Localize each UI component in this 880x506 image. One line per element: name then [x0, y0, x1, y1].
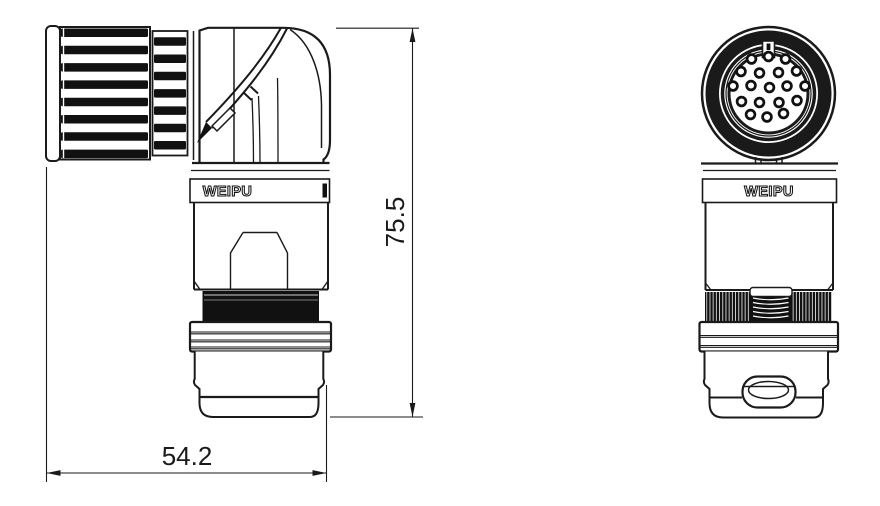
dim-height-arrow-bottom: [410, 403, 416, 417]
knurl-rib: [154, 37, 186, 46]
front-label-band: WEIPU: [701, 164, 838, 203]
front-coupling-rings: [702, 27, 835, 160]
connector-pin: [783, 82, 792, 91]
technical-drawing-canvas: WEIPU: [0, 0, 880, 506]
connector-pin: [775, 98, 784, 107]
knurl-rib: [61, 132, 148, 141]
rib-collar: [153, 31, 188, 156]
connector-pin: [747, 81, 756, 90]
connector-pin: [747, 55, 756, 64]
dim-width-arrow-left: [47, 470, 61, 476]
connector-pin: [746, 110, 755, 119]
front-brand-label: WEIPU: [744, 184, 794, 200]
connector-pin: [764, 52, 773, 61]
knurl-rib: [61, 115, 148, 124]
thread-tab: [750, 288, 792, 297]
connector-pin: [801, 82, 810, 91]
knurl-rib: [154, 72, 186, 81]
connector-pin: [755, 98, 764, 107]
shell-parting-line-3: [278, 78, 279, 163]
dim-width-label: 54.2: [162, 441, 213, 471]
connector-pin: [729, 82, 738, 91]
front-body: [706, 203, 834, 291]
side-body: [194, 203, 328, 290]
knurl-rib: [154, 124, 186, 133]
front-thread: [705, 288, 832, 322]
side-brand-label: WEIPU: [203, 184, 253, 200]
connector-pin: [781, 55, 790, 64]
side-label-band: WEIPU: [190, 163, 330, 203]
connector-pin: [774, 68, 783, 77]
knurl-rib: [61, 46, 148, 55]
front-view: WEIPU: [700, 27, 839, 418]
knurl-rib: [154, 55, 186, 64]
dim-height-label: 75.5: [380, 197, 410, 248]
knurl-rib: [61, 98, 148, 107]
connector-drawing: WEIPU: [0, 0, 880, 506]
knurl-rib: [154, 89, 186, 98]
connector-pin: [755, 69, 764, 78]
side-flange: [190, 322, 331, 352]
knurl-rib: [154, 141, 186, 150]
elbow-outline: [200, 28, 331, 163]
body-chamfers: [194, 281, 328, 290]
coupling-cap: [46, 26, 150, 161]
dim-width-arrow-right: [313, 470, 327, 476]
knurl-rib: [61, 63, 148, 72]
connector-pin: [765, 83, 774, 92]
gland-outline: [194, 352, 324, 418]
elbow-housing: [194, 28, 331, 163]
knurl-rib: [61, 29, 148, 38]
connector-pin: [737, 67, 746, 76]
connector-pin: [737, 97, 746, 106]
connector-pin: [792, 67, 801, 76]
dim-height-arrow-top: [410, 28, 416, 42]
side-gland: [194, 352, 324, 418]
front-gland: [704, 352, 829, 418]
knurl-rib: [61, 150, 148, 159]
cap-end-rim: [46, 26, 60, 161]
side-thread-seal: [203, 291, 320, 321]
dim-height: 75.5: [330, 28, 423, 417]
label-band-tick: [323, 184, 328, 198]
knurl-rib: [61, 80, 148, 89]
knurl-rib: [154, 106, 186, 115]
connector-pin: [793, 96, 802, 105]
hex-nut-facets: [231, 233, 288, 290]
front-flange: [700, 322, 839, 352]
connector-pin: [763, 113, 772, 122]
side-view: WEIPU: [46, 26, 331, 417]
connector-pin: [779, 109, 788, 118]
keyway-tick: [767, 44, 771, 51]
